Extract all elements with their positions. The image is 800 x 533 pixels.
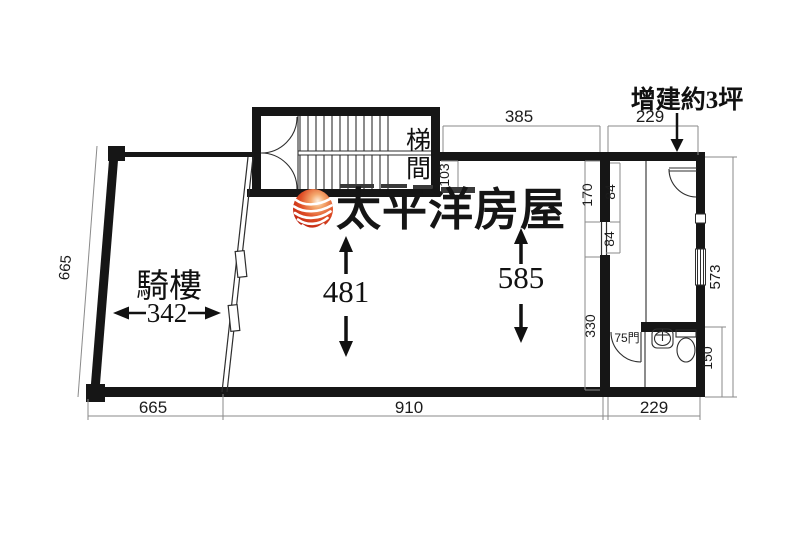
dim-150: 150 xyxy=(699,346,715,370)
top-left-wall xyxy=(121,152,252,157)
dim-84a: 84 xyxy=(602,184,618,200)
dim-170: 170 xyxy=(579,183,595,207)
dim-330: 330 xyxy=(582,314,598,338)
dim-573: 573 xyxy=(707,264,724,289)
dim-910: 910 xyxy=(395,398,423,417)
dim-342: 342 xyxy=(147,298,188,328)
dim-665-bottom: 665 xyxy=(139,398,167,417)
logo-globe-icon xyxy=(293,189,333,229)
bottom-wall xyxy=(96,387,705,397)
floor-plan-canvas: 梯間 75門 xyxy=(0,0,800,533)
stairwell-label: 梯間 xyxy=(403,127,432,183)
stair-top-wall xyxy=(252,107,440,116)
arcade-column-icon xyxy=(235,251,247,278)
stair-left-wall xyxy=(252,107,261,197)
arcade-column-icon xyxy=(228,305,240,332)
logo-brand-text: 太平洋房屋 xyxy=(336,184,566,235)
dim-585: 585 xyxy=(498,260,545,295)
bath-door-label: 75門 xyxy=(614,331,639,345)
dim-665-left: 665 xyxy=(56,254,75,280)
window-break-icon xyxy=(696,214,706,223)
main-top-wall xyxy=(440,152,705,161)
background xyxy=(0,0,800,533)
dim-229-bottom: 229 xyxy=(640,398,668,417)
inner-wall-lower xyxy=(600,255,610,390)
annex-label: 增建約3坪 xyxy=(631,85,744,114)
floor-plan-drawing: 梯間 75門 xyxy=(0,0,800,533)
dim-481: 481 xyxy=(323,274,370,309)
dim-385: 385 xyxy=(505,107,533,126)
dim-84b: 84 xyxy=(601,231,617,247)
